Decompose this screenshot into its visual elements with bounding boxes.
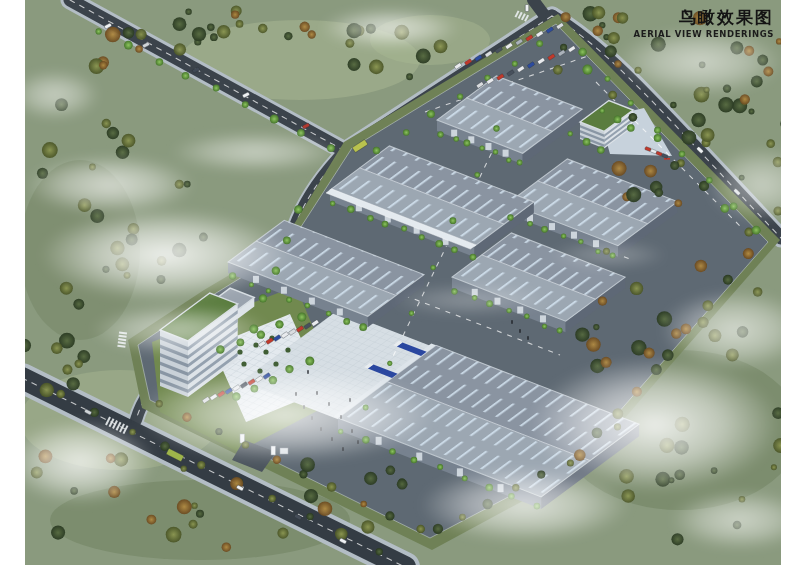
aerial-rendering-canvas: 鸟瞰效果图 AERIAL VIEW RENDERINGS — [0, 0, 800, 565]
tree — [453, 136, 459, 142]
tree — [222, 542, 231, 551]
tree — [326, 311, 331, 316]
tree — [416, 525, 425, 534]
tree — [479, 145, 484, 150]
car — [525, 5, 529, 12]
tree — [258, 24, 268, 34]
loading-door — [281, 287, 287, 294]
tree — [627, 124, 635, 132]
tree — [305, 303, 311, 309]
tree — [95, 28, 101, 34]
tree — [105, 27, 121, 43]
tree — [217, 25, 231, 39]
tree — [207, 23, 215, 31]
tree — [73, 299, 84, 310]
tree — [598, 296, 607, 305]
tree — [654, 127, 661, 134]
tree — [124, 41, 133, 50]
loading-door — [485, 143, 491, 150]
cloud — [548, 241, 668, 269]
tree — [612, 161, 627, 176]
tree — [670, 161, 679, 170]
tree — [740, 94, 750, 104]
cloud — [135, 367, 435, 463]
tree — [286, 297, 292, 303]
tree — [270, 115, 279, 124]
tree — [308, 30, 316, 38]
tree — [343, 318, 350, 325]
tree — [593, 26, 603, 36]
shrub — [285, 347, 290, 352]
tree — [578, 48, 587, 57]
tree — [512, 61, 518, 67]
tree — [771, 464, 777, 470]
tree — [597, 146, 605, 154]
tree — [376, 548, 383, 555]
tree — [568, 131, 573, 136]
tree — [367, 215, 374, 222]
tree — [369, 60, 384, 75]
tree — [196, 510, 204, 518]
tree — [347, 205, 355, 213]
tree — [397, 479, 408, 490]
tree — [630, 282, 643, 295]
loading-door — [540, 315, 546, 322]
tree — [583, 138, 591, 146]
page-margin-right — [781, 0, 800, 565]
tree — [430, 265, 435, 270]
tree — [231, 11, 239, 19]
tree — [679, 151, 686, 158]
tree — [457, 93, 463, 99]
tree — [654, 134, 662, 142]
tree — [507, 214, 513, 220]
loading-door — [451, 130, 457, 137]
tree — [701, 128, 715, 142]
tree — [644, 165, 657, 178]
tree — [192, 27, 206, 41]
tree — [107, 127, 119, 139]
tree — [670, 102, 676, 108]
tree — [542, 324, 547, 329]
tree — [275, 320, 283, 328]
loading-door — [309, 298, 315, 305]
tree — [449, 217, 456, 224]
tree — [617, 12, 629, 24]
shrub — [237, 349, 242, 354]
tree — [330, 201, 335, 206]
cloud — [390, 284, 550, 316]
tree — [401, 226, 407, 232]
loading-door — [503, 150, 509, 157]
tree — [557, 328, 563, 334]
tree — [75, 360, 83, 368]
tree — [592, 6, 605, 19]
tree — [348, 58, 361, 71]
loading-door — [337, 308, 343, 315]
tree — [359, 323, 367, 331]
tree — [600, 108, 605, 113]
tree — [242, 101, 249, 108]
tree — [266, 288, 271, 293]
tree — [536, 40, 543, 47]
tree — [361, 520, 374, 533]
tree — [213, 85, 220, 92]
tree — [605, 45, 617, 57]
tree — [305, 357, 314, 366]
tree — [524, 314, 529, 319]
cloud — [25, 155, 195, 215]
cloud — [40, 209, 290, 301]
tree — [185, 9, 191, 15]
tree — [419, 234, 425, 240]
tree — [463, 140, 470, 147]
page-margin-left — [0, 0, 25, 565]
cloud — [420, 467, 630, 543]
shrub — [273, 361, 278, 366]
tree — [297, 313, 306, 322]
cloud — [5, 420, 155, 504]
tree — [181, 466, 187, 472]
tree — [409, 311, 414, 316]
tree — [386, 466, 396, 476]
tree — [39, 383, 54, 398]
tree — [493, 125, 499, 131]
tree — [51, 342, 63, 354]
tree — [561, 233, 566, 238]
tree — [306, 513, 313, 520]
tree — [51, 526, 65, 540]
tree — [654, 188, 663, 197]
tree — [382, 221, 389, 228]
tree — [506, 158, 511, 163]
tree — [586, 337, 601, 352]
tree — [191, 502, 197, 508]
page-subtitle: AERIAL VIEW RENDERINGS — [634, 29, 774, 39]
tree — [752, 226, 761, 235]
tree — [259, 294, 267, 302]
tree — [146, 515, 156, 525]
tree — [411, 457, 418, 464]
tree — [695, 260, 707, 272]
tree — [626, 187, 641, 202]
tree — [304, 489, 318, 503]
loading-door — [549, 223, 555, 230]
tree — [682, 130, 697, 145]
tree — [284, 32, 292, 40]
tree — [493, 149, 498, 154]
tree — [62, 365, 72, 375]
tree — [403, 129, 410, 136]
tree — [327, 482, 337, 492]
shrub — [241, 361, 246, 366]
tree — [541, 226, 548, 233]
tree — [135, 45, 143, 53]
cloud — [90, 305, 270, 355]
cloud — [320, 8, 460, 48]
tree — [435, 240, 443, 248]
tree — [387, 361, 392, 366]
tree — [364, 472, 377, 485]
tree — [197, 461, 205, 469]
tree — [718, 97, 733, 112]
tree — [644, 348, 655, 359]
tree — [177, 499, 192, 514]
tree — [593, 324, 599, 330]
cloud — [170, 132, 340, 172]
page-title: 鸟瞰效果图 — [634, 7, 774, 28]
tree — [174, 43, 186, 55]
tree — [268, 495, 275, 502]
tree — [136, 29, 147, 40]
tree — [582, 65, 592, 75]
tree — [470, 254, 477, 261]
tree — [67, 377, 80, 390]
tree — [236, 20, 244, 28]
tree — [743, 248, 754, 259]
tree — [766, 139, 775, 148]
tree — [517, 160, 523, 166]
tree — [614, 116, 622, 124]
tree — [553, 65, 563, 75]
title-block: 鸟瞰效果图 AERIAL VIEW RENDERINGS — [634, 7, 774, 39]
tree — [123, 27, 135, 39]
tree — [122, 134, 136, 148]
tree — [406, 73, 413, 80]
tree — [575, 327, 589, 341]
tree — [294, 205, 302, 213]
person — [511, 320, 513, 324]
tree — [299, 22, 309, 32]
loading-door — [571, 232, 577, 239]
tree — [437, 464, 443, 470]
tree — [385, 511, 394, 520]
tree — [182, 72, 190, 80]
shrub — [263, 349, 268, 354]
tree — [628, 113, 637, 122]
tree — [608, 32, 620, 44]
tree — [427, 110, 435, 118]
tree — [561, 12, 571, 22]
tree — [166, 527, 182, 543]
tree — [277, 528, 288, 539]
tree — [674, 199, 682, 207]
tree — [102, 119, 111, 128]
tree — [173, 17, 187, 31]
tree — [628, 100, 634, 106]
tree — [210, 33, 218, 41]
tree — [56, 390, 65, 399]
tree — [723, 275, 733, 285]
person — [527, 336, 529, 340]
tree — [748, 108, 754, 114]
tree — [608, 91, 617, 100]
tree — [474, 172, 480, 178]
rendering-scene — [0, 0, 800, 565]
tree — [156, 58, 164, 66]
tree — [451, 247, 458, 254]
tree — [416, 49, 431, 64]
tree — [691, 113, 705, 127]
tree — [373, 147, 380, 154]
person — [519, 329, 521, 333]
tree — [360, 501, 366, 507]
tree — [318, 501, 333, 516]
tree — [605, 76, 611, 82]
tree — [437, 131, 443, 137]
tree — [99, 61, 107, 69]
tree — [42, 142, 58, 158]
tree — [527, 221, 533, 227]
tree — [189, 520, 198, 529]
